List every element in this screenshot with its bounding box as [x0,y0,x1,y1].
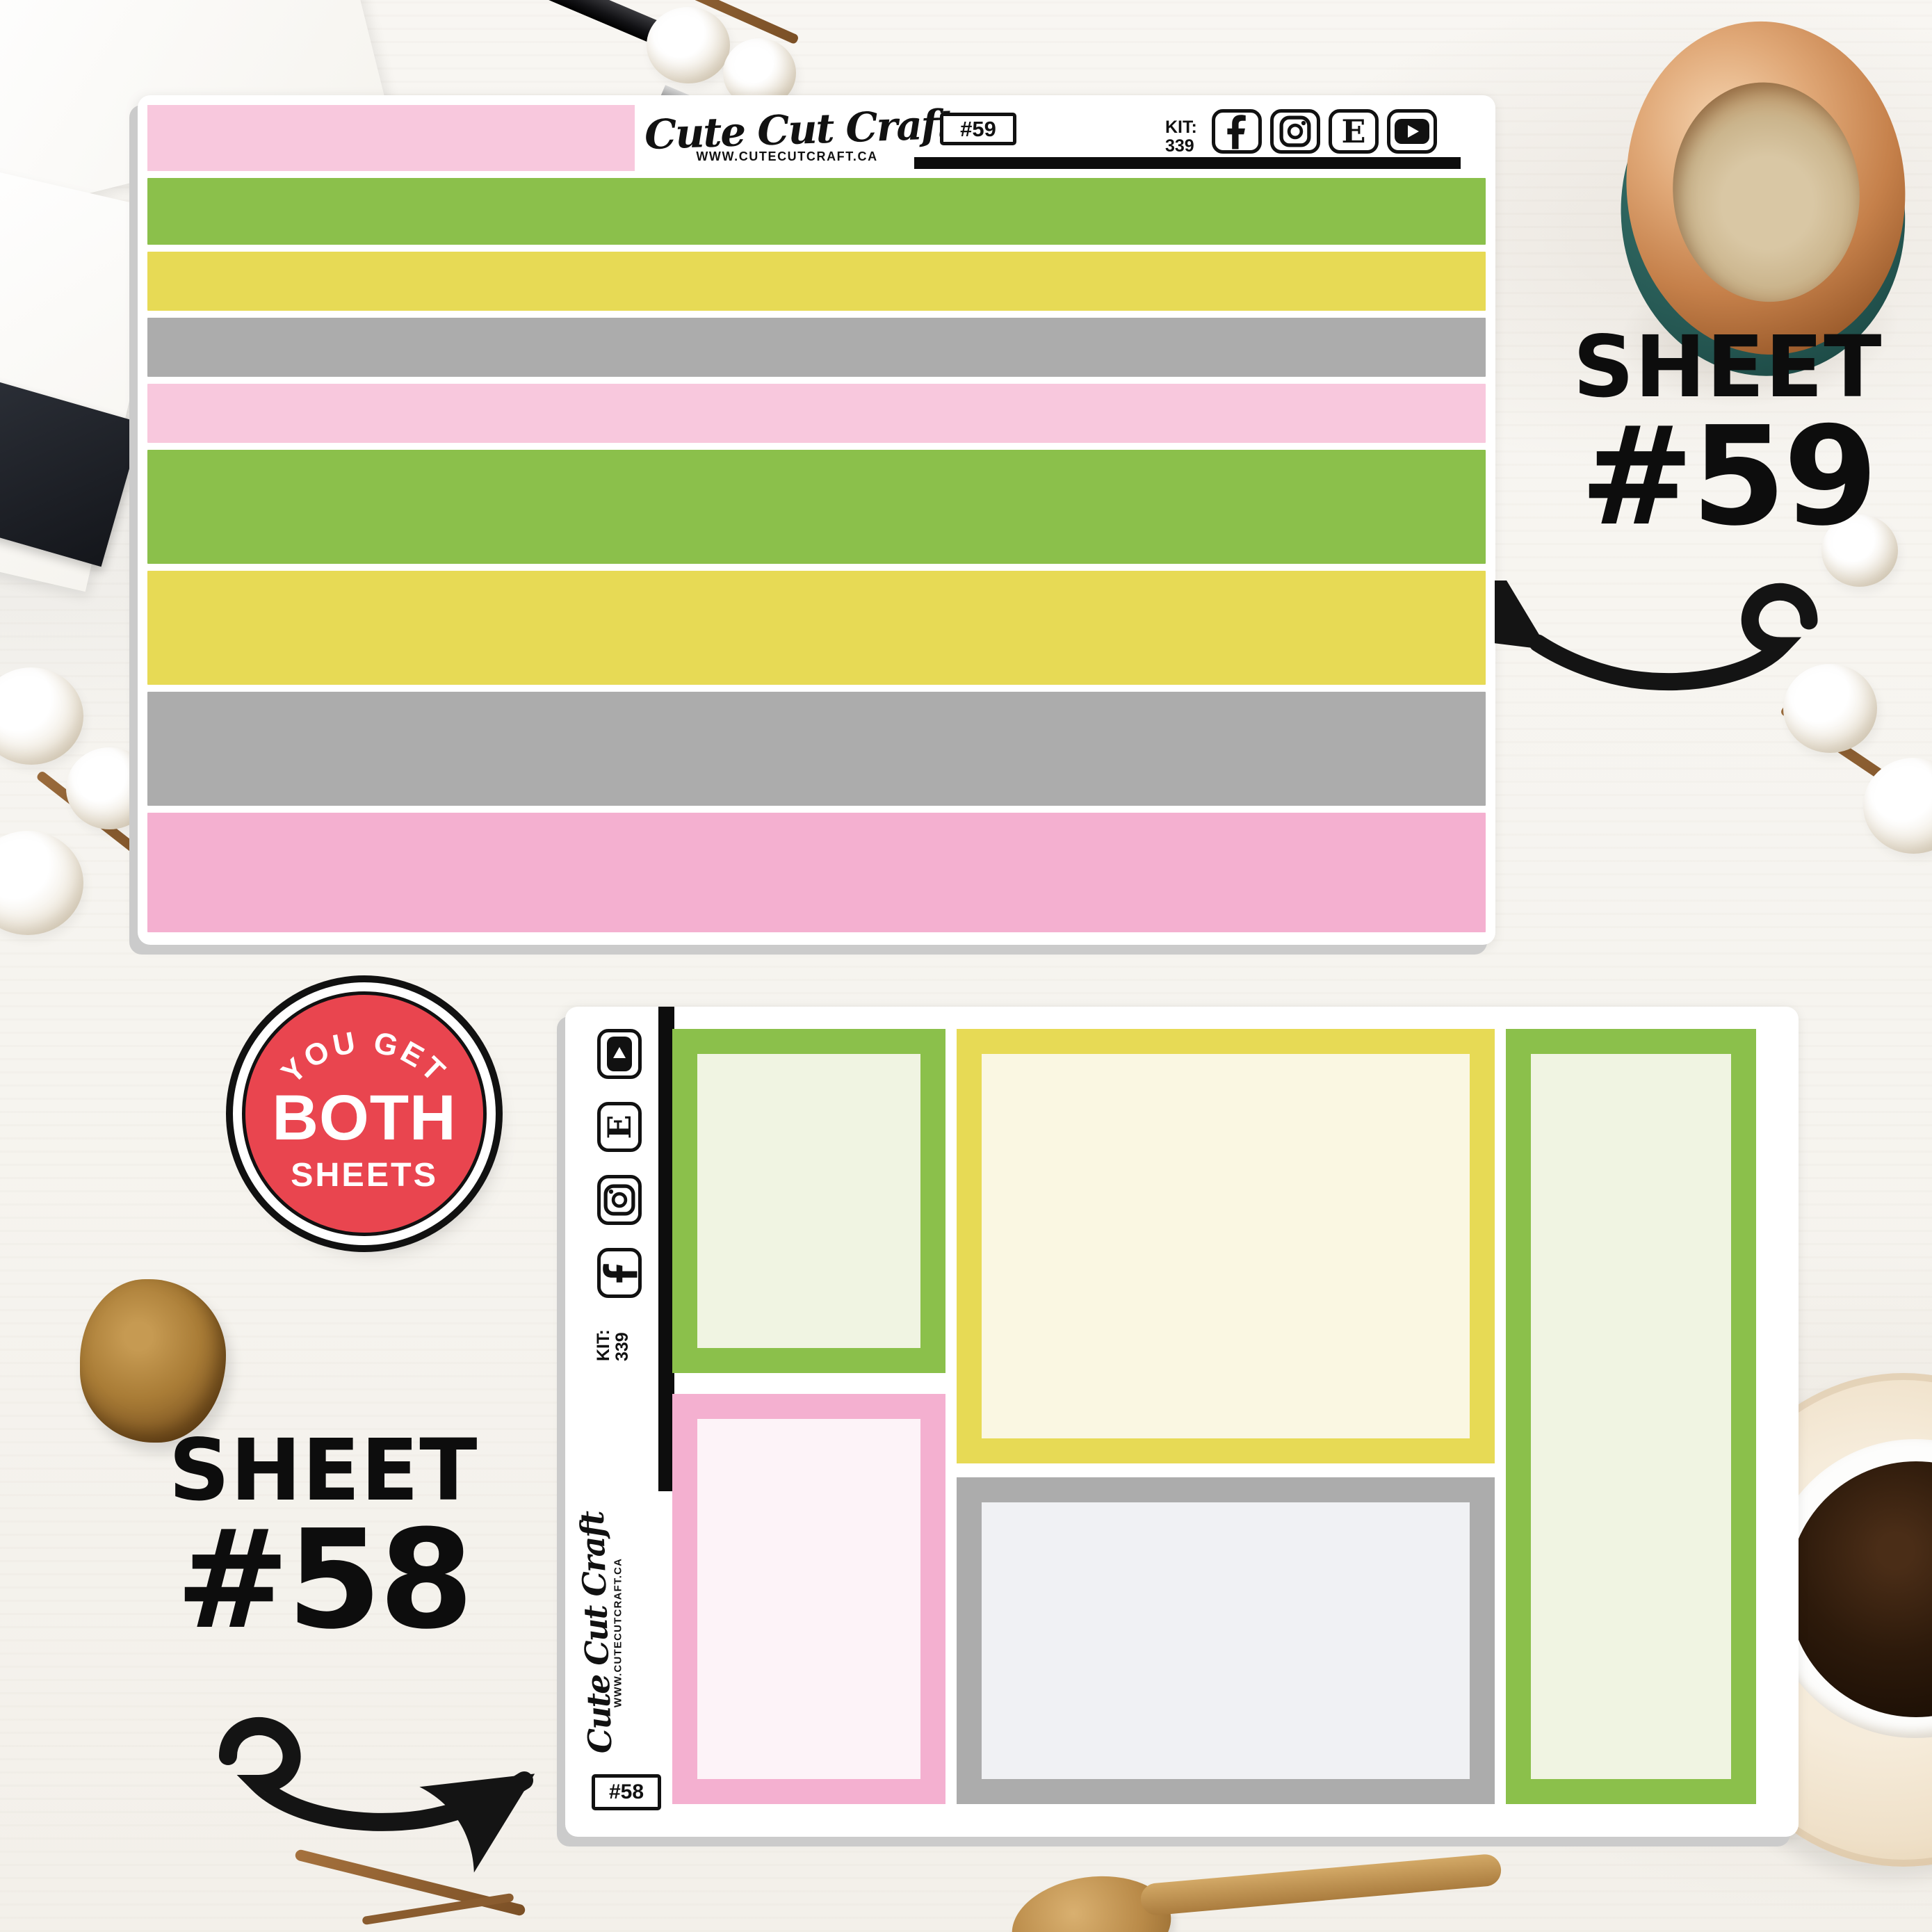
badge-line-bottom: SHEETS [291,1156,438,1194]
callout-58-word: SHEET [108,1429,539,1512]
kit-label: KIT: [1165,117,1197,137]
callout-59-number: #59 [1540,409,1915,545]
facebook-icon [597,1248,642,1298]
sticker-box-right [1506,1029,1756,1804]
sticker-strip-pink [147,813,1486,932]
youtube-play-badge [1395,119,1429,144]
badge-line-middle: BOTH [272,1081,456,1153]
brand-logo: Cute Cut Craft WWW.CUTECUTCRAFT.CA [644,109,930,164]
brand-logo: Cute Cut Craft WWW.CUTECUTCRAFT.CA [579,1487,652,1779]
sticker-box-top-mid [957,1029,1495,1463]
etsy-icon: E [1329,109,1379,154]
cotton-boll [647,7,730,83]
sticker-strip-yellow [147,571,1486,685]
kit-value: 339 [612,1332,632,1361]
sticker-box-top-left [672,1029,945,1373]
header-black-bar [914,157,1461,169]
badge-text: YOU GET BOTH SHEETS [245,995,483,1233]
sticker-strip-yellow [147,252,1486,311]
brand-logo-script: Cute Cut Craft [644,104,930,156]
callout-sheet-59: SHEET #59 [1540,325,1915,545]
sticker-sheet-58: E KIT:339 Cute Cut Craft WWW.CUTECUTCRAF… [565,1007,1799,1837]
sticker-strip-green [147,178,1486,245]
sticker-sheet-59: Cute Cut Craft WWW.CUTECUTCRAFT.CA #59 K… [138,95,1495,945]
header-pink-strip [147,105,635,171]
kit-value: 339 [1165,136,1194,156]
sheet-number-tag: #59 [940,113,1016,145]
social-icons-column: E [594,1032,644,1295]
social-icons-row: E [1212,109,1437,154]
play-icon [1408,125,1419,138]
sticker-box-bottom-mid [957,1477,1495,1804]
sheet-number-tag: #58 [592,1774,661,1810]
sticker-strip-gray [147,318,1486,377]
sheet59-header: Cute Cut Craft WWW.CUTECUTCRAFT.CA #59 K… [147,105,1486,171]
instagram-icon [597,1175,642,1225]
callout-sheet-58: SHEET #58 [108,1429,539,1648]
youtube-icon [597,1029,642,1079]
kit-number: KIT:339 [594,1292,636,1361]
dried-pod [80,1279,226,1443]
arrow-to-sheet-59 [1495,581,1835,730]
you-get-both-sheets-badge: YOU GET BOTH SHEETS [242,991,487,1236]
sheet59-strips [147,178,1486,932]
callout-58-number: #58 [108,1512,539,1648]
callout-59-word: SHEET [1540,325,1915,409]
kit-label: KIT: [594,1329,613,1361]
sticker-strip-gray [147,692,1486,806]
sticker-strip-pink_light [147,384,1486,443]
youtube-play-badge [607,1037,632,1071]
arrow-to-sheet-58 [160,1712,563,1875]
youtube-icon [1387,109,1437,154]
play-icon [613,1047,626,1058]
facebook-icon [1212,109,1262,154]
etsy-icon: E [597,1102,642,1152]
sticker-box-bottom-left [672,1394,945,1804]
instagram-icon [1270,109,1320,154]
kit-number: KIT:339 [1165,118,1197,156]
sticker-strip-green [147,450,1486,564]
product-photo-stage: Cute Cut Craft WWW.CUTECUTCRAFT.CA #59 K… [0,0,1932,1932]
